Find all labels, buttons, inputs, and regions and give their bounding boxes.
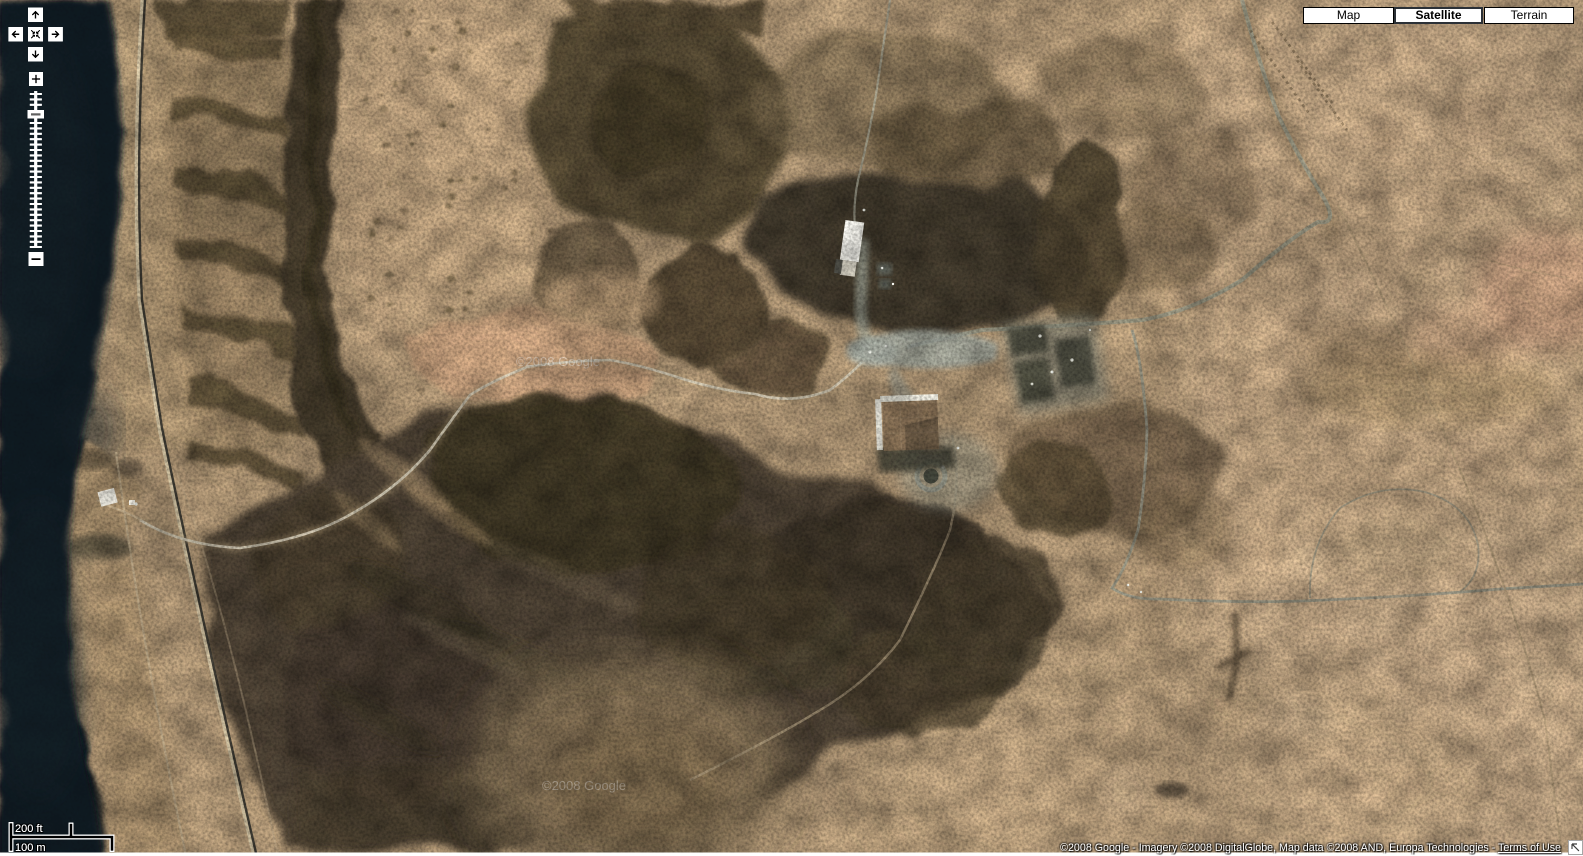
svg-text:100 m: 100 m <box>15 842 46 854</box>
svg-text:200 ft: 200 ft <box>15 823 43 835</box>
